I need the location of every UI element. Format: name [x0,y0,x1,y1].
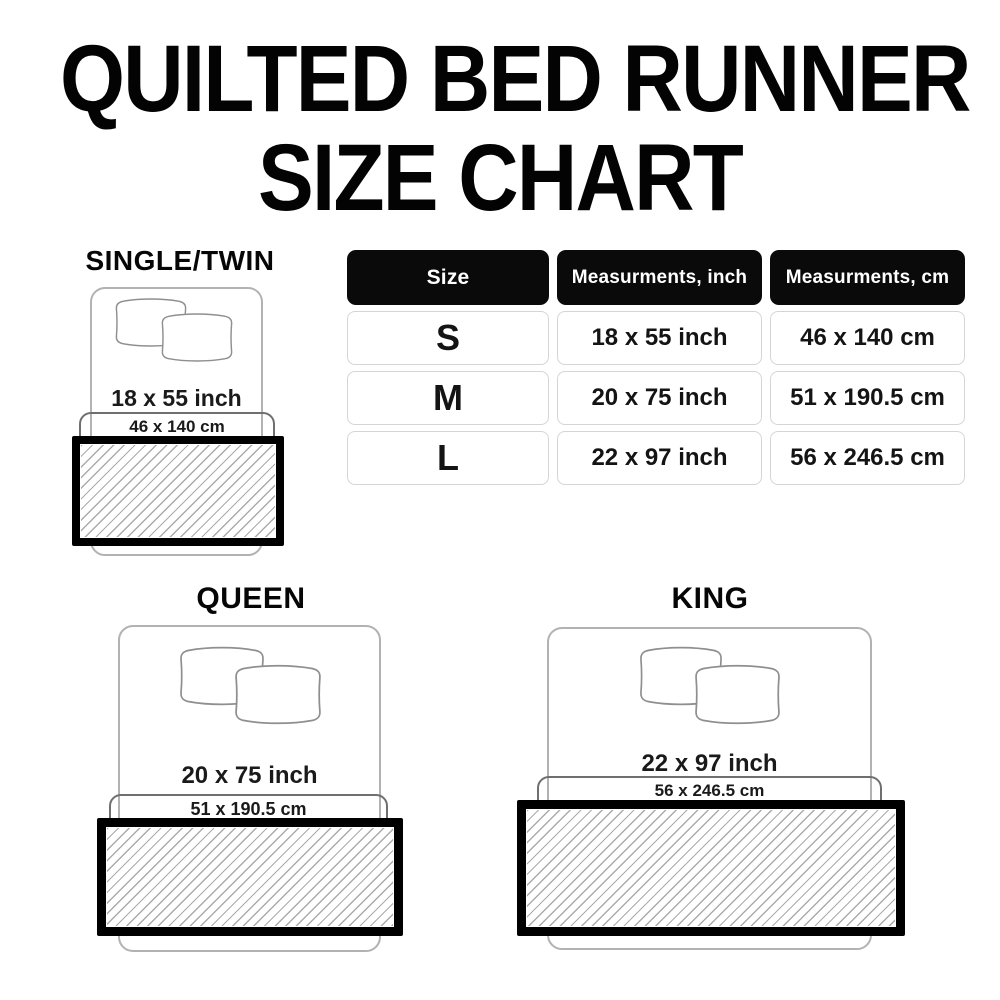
diagram-king-label: KING [510,582,910,616]
dimension-inch-label: 20 x 75 inch [118,762,381,790]
table-header-cm: Measurments, cm [770,250,965,305]
page-title-line-2: SIZE CHART [60,129,940,228]
page-title-line-1: QUILTED BED RUNNER [60,30,940,129]
dimension-cm-label: 56 x 246.5 cm [537,781,882,801]
pillow-icon [232,662,324,727]
dimension-cm-label: 46 x 140 cm [79,417,275,437]
size-chart-infographic: QUILTED BED RUNNER SIZE CHART Size Measu… [0,0,1000,1000]
table-cell-size-m: M [347,371,549,425]
hatch-pattern [107,828,393,926]
table-header-size: Size [347,250,549,305]
dimension-inch-label: 22 x 97 inch [547,750,872,778]
table-cell-inch-m: 20 x 75 inch [557,371,762,425]
table-cell-inch-l: 22 x 97 inch [557,431,762,485]
diagram-single-twin-label: SINGLE/TWIN [60,245,300,277]
hatch-pattern [81,445,275,537]
table-cell-size-s: S [347,311,549,365]
table-cell-cm-m: 51 x 190.5 cm [770,371,965,425]
page-title: QUILTED BED RUNNER SIZE CHART [0,30,1000,228]
diagram-queen: QUEEN 20 x 75 inch 51 x 190.5 cm [95,578,407,954]
size-table: Size Measurments, inch Measurments, cm S… [347,250,965,485]
bed-runner-swatch [97,818,403,936]
table-cell-cm-s: 46 x 140 cm [770,311,965,365]
pillow-icon [692,662,783,727]
table-cell-cm-l: 56 x 246.5 cm [770,431,965,485]
diagram-single-twin: SINGLE/TWIN 18 x 55 inch 46 x 140 cm [60,244,300,557]
dimension-cm-label: 51 x 190.5 cm [109,799,388,820]
dimension-inch-label: 18 x 55 inch [90,385,263,412]
table-header-inch: Measurments, inch [557,250,762,305]
bed-runner-swatch [72,436,284,546]
table-cell-inch-s: 18 x 55 inch [557,311,762,365]
diagram-queen-label: QUEEN [95,582,407,616]
diagram-king: KING 22 x 97 inch 56 x 246.5 cm [510,578,910,954]
pillow-icon [159,311,235,364]
hatch-pattern [527,810,895,926]
bed-runner-swatch [517,800,905,936]
table-cell-size-l: L [347,431,549,485]
